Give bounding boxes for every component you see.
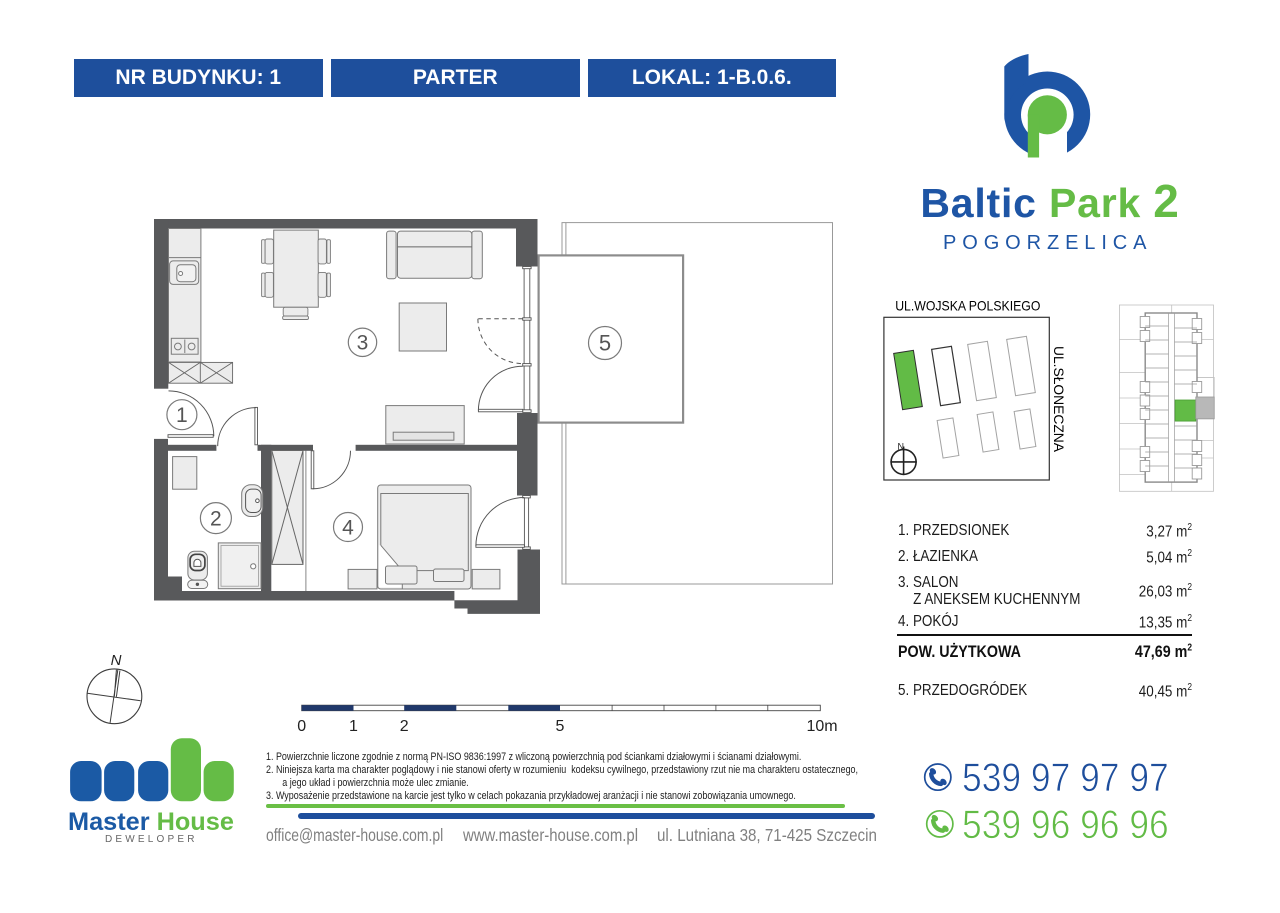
svg-text:UL.SŁONECZNA: UL.SŁONECZNA [1051,346,1067,453]
svg-text:5: 5 [556,718,565,735]
svg-text:10m: 10m [806,718,837,735]
svg-text:N: N [111,652,122,669]
svg-text:1: 1 [176,404,188,427]
svg-text:0: 0 [297,718,306,735]
svg-text:2: 2 [400,718,409,735]
svg-text:4: 4 [342,516,354,539]
svg-text:UL.WOJSKA POLSKIEGO: UL.WOJSKA POLSKIEGO [895,298,1040,314]
svg-text:1: 1 [349,718,358,735]
svg-text:N: N [897,442,904,452]
svg-text:2: 2 [210,508,222,531]
svg-text:5: 5 [599,331,611,356]
svg-text:3: 3 [357,332,369,355]
